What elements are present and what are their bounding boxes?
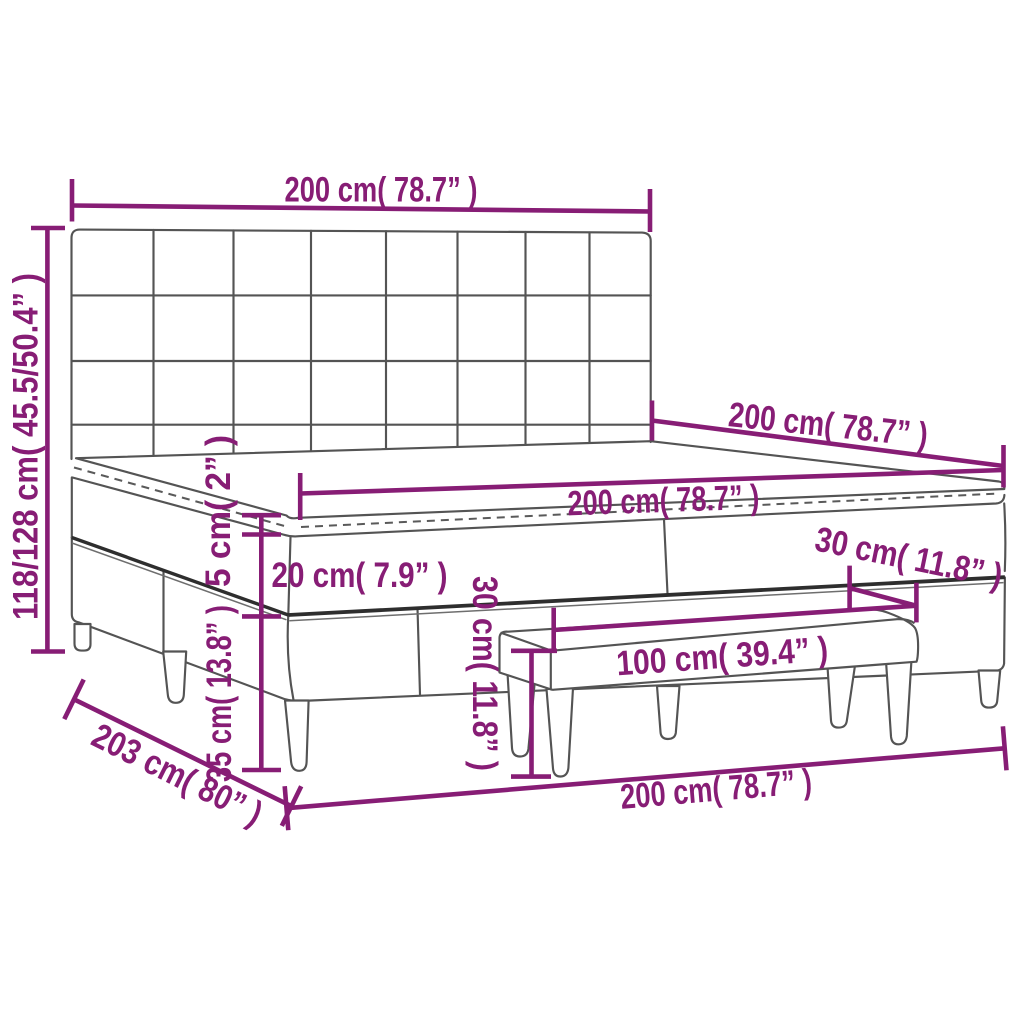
svg-text:30 cm( 11.8” ): 30 cm( 11.8” ) xyxy=(465,576,504,771)
svg-text:200 cm( 78.7” ): 200 cm( 78.7” ) xyxy=(567,478,760,524)
svg-text:5 cm( 2” ): 5 cm( 2” ) xyxy=(199,435,238,587)
svg-text:118/128 cm( 45.5/50.4” ): 118/128 cm( 45.5/50.4” ) xyxy=(7,273,46,620)
svg-text:20 cm( 7.9” ): 20 cm( 7.9” ) xyxy=(272,556,448,595)
svg-text:200 cm( 78.7” ): 200 cm( 78.7” ) xyxy=(285,171,478,210)
svg-text:35 cm( 13.8” ): 35 cm( 13.8” ) xyxy=(200,605,239,782)
